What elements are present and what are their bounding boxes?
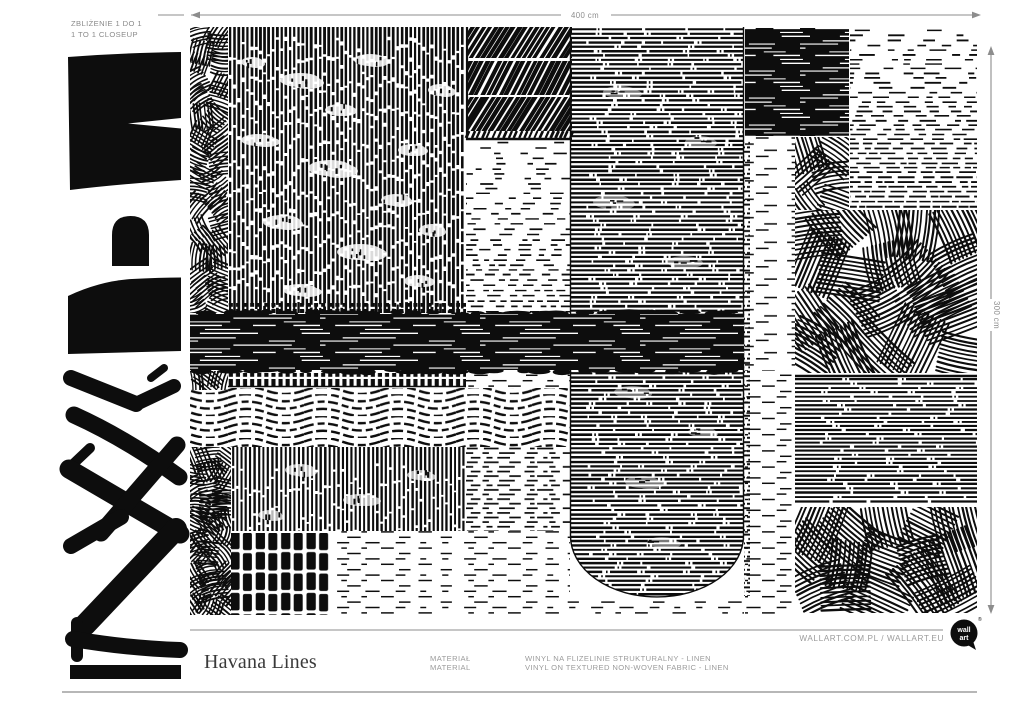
svg-text:400 cm: 400 cm [571,11,599,20]
svg-text:®: ® [978,616,982,623]
svg-text:VINYL ON TEXTURED NON-WOVEN FA: VINYL ON TEXTURED NON-WOVEN FABRIC - LIN… [525,663,729,672]
svg-text:WALLART.COM.PL / WALLART.EU: WALLART.COM.PL / WALLART.EU [799,634,944,643]
svg-text:Havana Lines: Havana Lines [204,651,317,673]
svg-text:300 cm: 300 cm [992,301,1001,329]
svg-text:wall: wall [956,627,970,634]
svg-text:ZBLIŻENIE 1 DO 1: ZBLIŻENIE 1 DO 1 [71,19,142,28]
svg-text:1 TO 1 CLOSEUP: 1 TO 1 CLOSEUP [71,30,138,39]
svg-text:art: art [960,635,970,642]
svg-text:WINYL NA FLIZELINIE STRUKTURAL: WINYL NA FLIZELINIE STRUKTURALNY - LINEN [525,654,711,663]
svg-text:MATERIAŁ: MATERIAŁ [430,654,471,663]
svg-text:MATERIAL: MATERIAL [430,663,471,672]
